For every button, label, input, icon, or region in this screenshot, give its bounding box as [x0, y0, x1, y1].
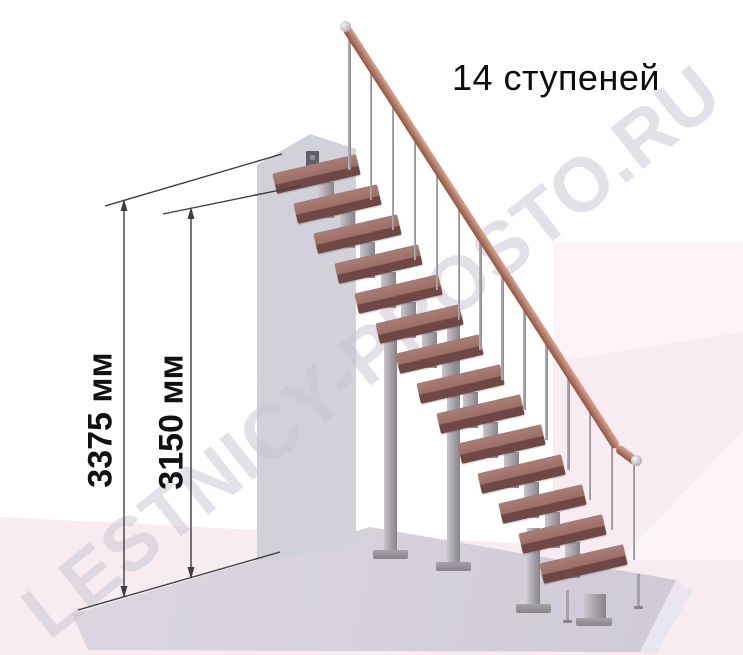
dimension-label-floor-height: 3150 мм: [153, 354, 192, 489]
step-count-title: 14 ступеней: [452, 57, 660, 99]
dimension-label-total-height: 3375 мм: [82, 352, 121, 487]
staircase-diagram: LESTNICY-PROSTO.RU 3375 мм 3150 мм 14 ст…: [0, 0, 743, 655]
